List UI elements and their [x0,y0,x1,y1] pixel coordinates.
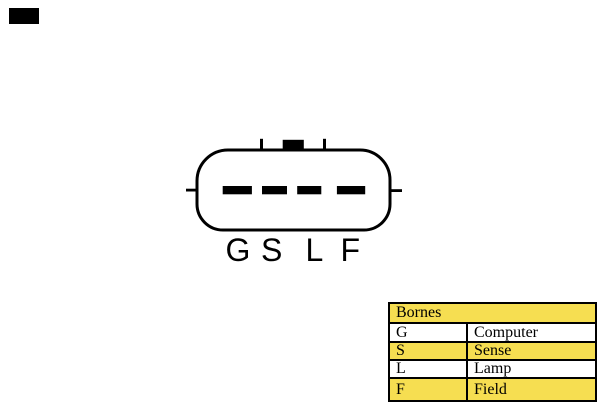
svg-text:L: L [306,232,324,268]
svg-text:S: S [261,232,282,268]
svg-text:F: F [341,232,361,268]
svg-text:G: G [226,232,251,268]
